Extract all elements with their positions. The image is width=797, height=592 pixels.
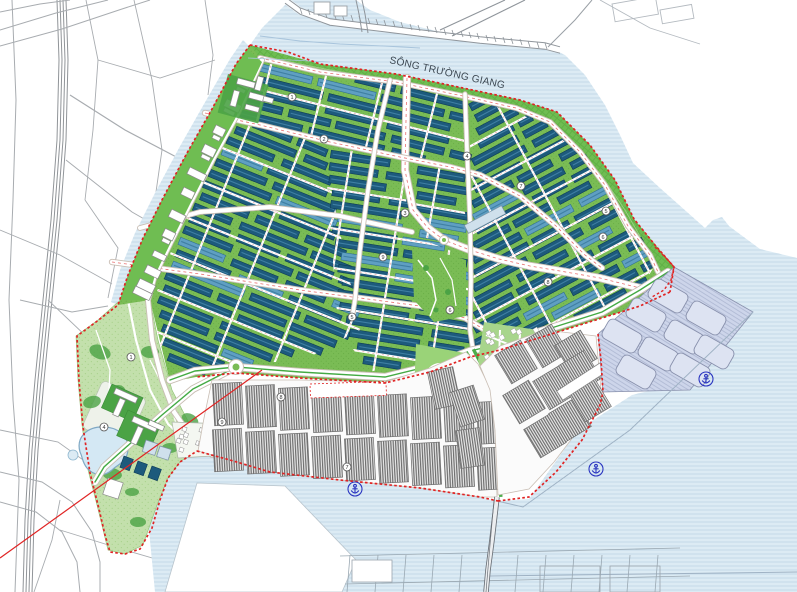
svg-text:2: 2 [322, 137, 325, 143]
svg-text:8: 8 [546, 280, 549, 286]
svg-text:7: 7 [519, 184, 522, 190]
svg-text:4: 4 [465, 154, 468, 160]
svg-text:4: 4 [102, 425, 105, 431]
svg-text:6: 6 [601, 235, 604, 241]
svg-text:5: 5 [604, 209, 607, 215]
svg-text:9: 9 [220, 420, 223, 426]
svg-text:5: 5 [350, 315, 353, 321]
svg-text:6: 6 [448, 308, 451, 314]
svg-text:9: 9 [381, 255, 384, 261]
svg-text:8: 8 [279, 395, 282, 401]
svg-text:3: 3 [403, 211, 406, 217]
svg-text:1: 1 [290, 95, 293, 101]
svg-text:7: 7 [345, 465, 348, 471]
svg-text:1: 1 [129, 355, 132, 361]
